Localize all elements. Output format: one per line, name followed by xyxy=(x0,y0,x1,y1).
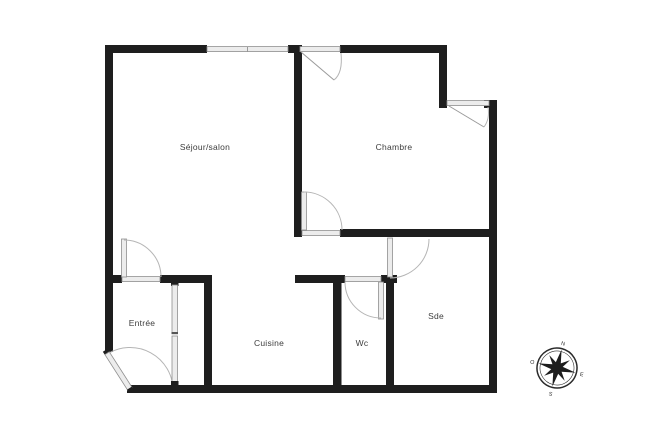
wall-hall-south-a xyxy=(105,275,122,283)
compass-letter-south: S xyxy=(548,391,553,398)
floorplan-drawing: N E S O xyxy=(0,0,650,433)
door-threshold xyxy=(302,231,340,236)
window-swing-arc xyxy=(334,53,341,80)
door-swing-arc xyxy=(124,240,161,277)
room-label-sde: Sde xyxy=(428,311,444,321)
door-leaf xyxy=(105,352,132,391)
door-leaf xyxy=(302,192,307,230)
window-glass xyxy=(447,101,489,106)
door-leaf xyxy=(122,239,127,277)
closet-panel-upper xyxy=(172,285,178,333)
wall-chambre-bottom xyxy=(340,229,497,237)
door-sejour-entree xyxy=(122,239,162,282)
walls xyxy=(105,45,497,393)
window-sejour-top xyxy=(207,47,288,52)
window-chambre-right xyxy=(447,101,489,127)
door-sde xyxy=(388,238,430,278)
wall-step-vertical xyxy=(439,45,447,108)
floorplan-canvas: N E S O Séjour/salon Chambre Entrée Cuis… xyxy=(0,0,650,433)
door-threshold xyxy=(122,277,160,282)
compass-letter-north: N xyxy=(560,341,565,348)
closet-cap-bottom xyxy=(171,381,179,389)
closet-panel-junction xyxy=(172,332,179,334)
door-threshold xyxy=(345,277,381,282)
compass-letter-west: O xyxy=(529,359,535,366)
window-leaf xyxy=(449,106,484,127)
room-label-entree: Entrée xyxy=(129,318,156,328)
window-swing-arc xyxy=(484,107,489,127)
compass-rose-icon: N E S O xyxy=(523,335,591,405)
wall-wc-west xyxy=(333,277,342,389)
door-leaf xyxy=(388,238,393,277)
wall-top-left xyxy=(105,45,207,53)
door-chambre xyxy=(302,192,343,236)
wall-sde-west xyxy=(386,277,394,389)
door-wc xyxy=(345,277,384,319)
room-label-cuisine: Cuisine xyxy=(254,338,284,348)
window-glass xyxy=(300,47,340,52)
compass-letter-east: E xyxy=(579,372,584,379)
room-label-sejour: Séjour/salon xyxy=(180,142,230,152)
closet-sliding-doors xyxy=(171,281,179,389)
wall-right xyxy=(489,100,497,393)
wall-top-right xyxy=(340,45,447,53)
wall-bottom xyxy=(127,385,497,393)
window-leaf xyxy=(301,52,334,80)
window-chambre-top xyxy=(300,47,341,80)
room-label-chambre: Chambre xyxy=(376,142,413,152)
door-swing-arc xyxy=(390,239,429,278)
door-leaf xyxy=(379,282,384,319)
wall-cuisine-west xyxy=(204,277,212,389)
closet-panel-lower xyxy=(172,336,178,383)
room-label-wc: Wc xyxy=(356,338,369,348)
wall-left xyxy=(105,45,113,352)
door-swing-arc xyxy=(345,282,381,318)
wall-sejour-chambre xyxy=(294,45,302,237)
door-swing-arc xyxy=(304,192,342,230)
